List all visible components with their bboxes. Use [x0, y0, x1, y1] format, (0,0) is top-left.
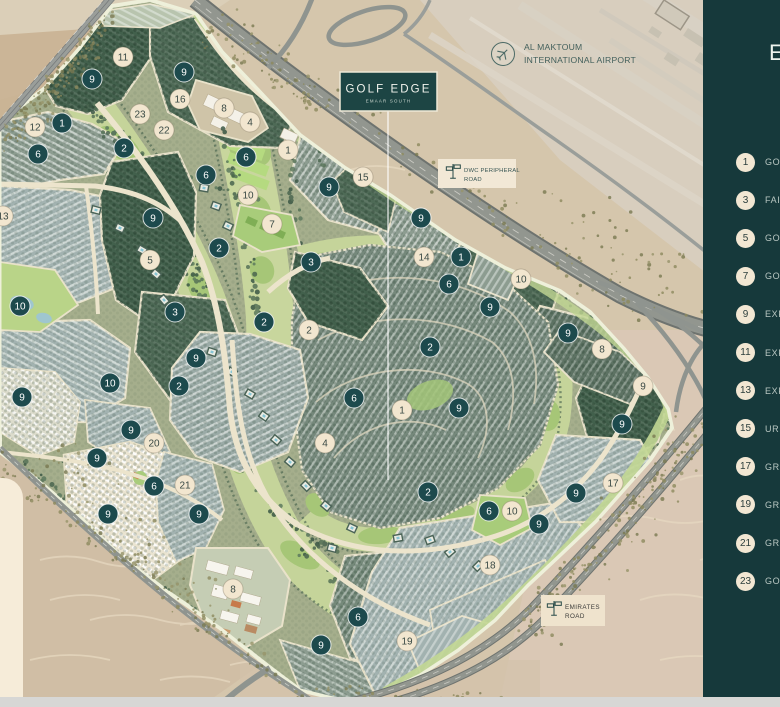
- svg-text:8: 8: [599, 345, 605, 356]
- svg-text:9: 9: [536, 520, 542, 531]
- svg-text:1: 1: [59, 119, 65, 130]
- svg-text:12: 12: [29, 123, 41, 134]
- svg-text:7: 7: [269, 220, 275, 231]
- svg-text:9: 9: [196, 510, 202, 521]
- svg-text:6: 6: [446, 280, 452, 291]
- svg-text:AL MAKTOUM: AL MAKTOUM: [524, 42, 582, 52]
- svg-text:DWC PERIPHERAL: DWC PERIPHERAL: [464, 168, 520, 174]
- svg-text:9: 9: [456, 404, 462, 415]
- svg-text:16: 16: [174, 95, 186, 106]
- svg-text:9: 9: [619, 420, 625, 431]
- svg-text:9: 9: [128, 426, 134, 437]
- svg-text:8: 8: [221, 104, 227, 115]
- svg-text:13: 13: [0, 212, 9, 223]
- svg-text:1: 1: [458, 253, 464, 264]
- svg-text:15: 15: [357, 173, 369, 184]
- svg-text:EMAAR SOUTH: EMAAR SOUTH: [366, 99, 411, 104]
- svg-text:2: 2: [261, 318, 267, 329]
- svg-text:9: 9: [418, 214, 424, 225]
- svg-text:9: 9: [105, 510, 111, 521]
- svg-text:2: 2: [427, 343, 433, 354]
- svg-text:17: 17: [607, 479, 619, 490]
- svg-text:1: 1: [285, 146, 291, 157]
- svg-text:10: 10: [515, 275, 527, 286]
- svg-text:2: 2: [121, 144, 127, 155]
- svg-text:6: 6: [151, 482, 157, 493]
- svg-text:9: 9: [193, 354, 199, 365]
- svg-text:6: 6: [351, 394, 357, 405]
- svg-text:9: 9: [318, 641, 324, 652]
- svg-text:INTERNATIONAL AIRPORT: INTERNATIONAL AIRPORT: [524, 55, 637, 65]
- svg-text:9: 9: [94, 454, 100, 465]
- svg-text:2: 2: [216, 244, 222, 255]
- svg-text:10: 10: [242, 191, 254, 202]
- svg-text:6: 6: [203, 171, 209, 182]
- svg-text:3: 3: [172, 308, 178, 319]
- svg-text:9: 9: [150, 214, 156, 225]
- svg-text:9: 9: [565, 329, 571, 340]
- svg-text:9: 9: [19, 393, 25, 404]
- svg-text:23: 23: [134, 110, 146, 121]
- svg-text:9: 9: [573, 489, 579, 500]
- svg-text:9: 9: [640, 382, 646, 393]
- svg-text:8: 8: [230, 585, 236, 596]
- svg-text:21: 21: [179, 481, 191, 492]
- svg-text:10: 10: [506, 507, 518, 518]
- svg-text:9: 9: [326, 183, 332, 194]
- svg-text:19: 19: [401, 637, 413, 648]
- svg-text:4: 4: [322, 439, 328, 450]
- svg-text:3: 3: [308, 258, 314, 269]
- svg-text:22: 22: [158, 126, 170, 137]
- svg-text:18: 18: [484, 561, 496, 572]
- svg-text:GOLF EDGE: GOLF EDGE: [346, 84, 432, 96]
- svg-text:9: 9: [181, 68, 187, 79]
- svg-text:10: 10: [104, 379, 116, 390]
- svg-text:1: 1: [399, 406, 405, 417]
- svg-text:6: 6: [355, 613, 361, 624]
- svg-text:9: 9: [487, 303, 493, 314]
- svg-text:6: 6: [35, 150, 41, 161]
- svg-text:EMIRATES: EMIRATES: [565, 604, 600, 611]
- svg-text:6: 6: [243, 153, 249, 164]
- svg-text:5: 5: [147, 256, 153, 267]
- svg-text:ROAD: ROAD: [565, 613, 585, 620]
- svg-text:ROAD: ROAD: [464, 177, 482, 183]
- svg-text:9: 9: [89, 75, 95, 86]
- svg-text:10: 10: [14, 302, 26, 313]
- svg-text:11: 11: [118, 53, 129, 64]
- svg-text:2: 2: [306, 326, 312, 337]
- svg-text:20: 20: [148, 439, 160, 450]
- svg-text:2: 2: [425, 488, 431, 499]
- svg-text:4: 4: [247, 118, 253, 129]
- svg-text:14: 14: [418, 253, 430, 264]
- svg-text:6: 6: [486, 507, 492, 518]
- svg-text:2: 2: [176, 382, 182, 393]
